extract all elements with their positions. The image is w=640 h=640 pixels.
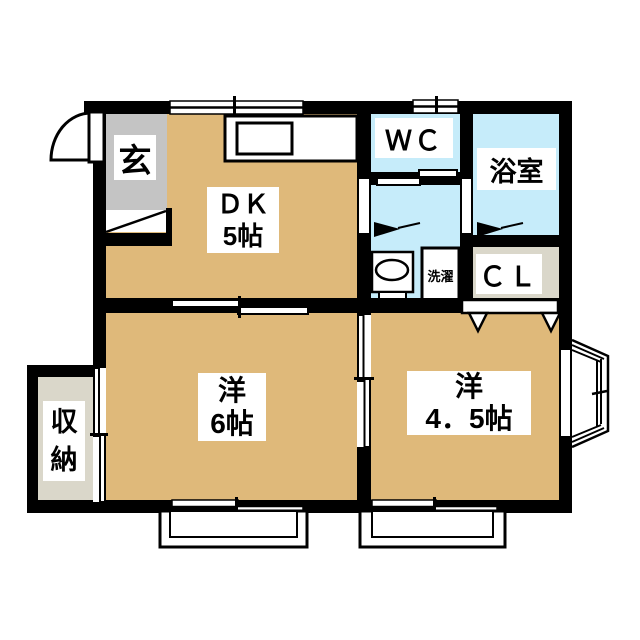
label-laundry: 洗濯 <box>422 262 459 288</box>
wall-storage-left <box>27 365 38 513</box>
label-western-room-6: 洋 6帖 <box>198 373 266 441</box>
west6-name-text: 洋 <box>218 374 246 407</box>
label-storage: 収 納 <box>43 401 85 481</box>
laundry-text: 洗濯 <box>427 266 453 285</box>
storage-text-2: 納 <box>51 441 78 479</box>
label-dining-kitchen: ＤＫ 5帖 <box>207 187 279 253</box>
window-toilet-top-icon <box>413 96 458 113</box>
storage-text-1: 収 <box>51 403 78 441</box>
wall-top <box>84 101 572 114</box>
west45-size-text: 4．5帖 <box>425 403 512 435</box>
bathroom-door-leaf <box>461 178 472 234</box>
floor-plan-drawing <box>0 0 640 640</box>
label-western-room-45: 洋 4．5帖 <box>407 371 531 435</box>
entrance-text: 玄 <box>119 134 152 182</box>
wall-entrance-stub-v <box>166 208 172 246</box>
bathroom-text: 浴室 <box>490 150 544 189</box>
label-closet: ＣＬ <box>476 254 542 294</box>
bay-window-icon <box>559 340 608 447</box>
washbasin-icon <box>372 252 413 300</box>
closet-text: ＣＬ <box>479 255 539 294</box>
label-toilet: ＷＣ <box>375 118 453 158</box>
wall-bathroom-bottom <box>460 235 572 247</box>
window-dk-top-icon <box>170 96 303 116</box>
dk-name-text: ＤＫ <box>217 188 269 220</box>
kitchen-counter-icon <box>225 116 357 161</box>
entrance-door-leaf <box>89 112 104 162</box>
dk-size-text: 5帖 <box>223 220 263 252</box>
label-bathroom: 浴室 <box>477 148 556 190</box>
toilet-text: ＷＣ <box>385 119 443 158</box>
kitchen-sink-icon <box>237 123 292 154</box>
entrance-door-icon <box>51 112 104 162</box>
terrace-step-left <box>160 511 307 547</box>
west6-west45-sliding-door-icon <box>354 315 374 447</box>
washroom-door-leaf <box>358 178 370 234</box>
west45-name-text: 洋 <box>455 371 483 403</box>
label-entrance: 玄 <box>114 135 156 180</box>
west6-size-text: 6帖 <box>210 407 254 440</box>
wall-entrance-stub <box>105 233 172 246</box>
floor-plan: 玄 ＤＫ 5帖 ＷＣ 浴室 ＣＬ 洗濯 収 納 洋 6帖 洋 4．5帖 <box>0 0 640 640</box>
terrace-step-right <box>360 511 505 547</box>
